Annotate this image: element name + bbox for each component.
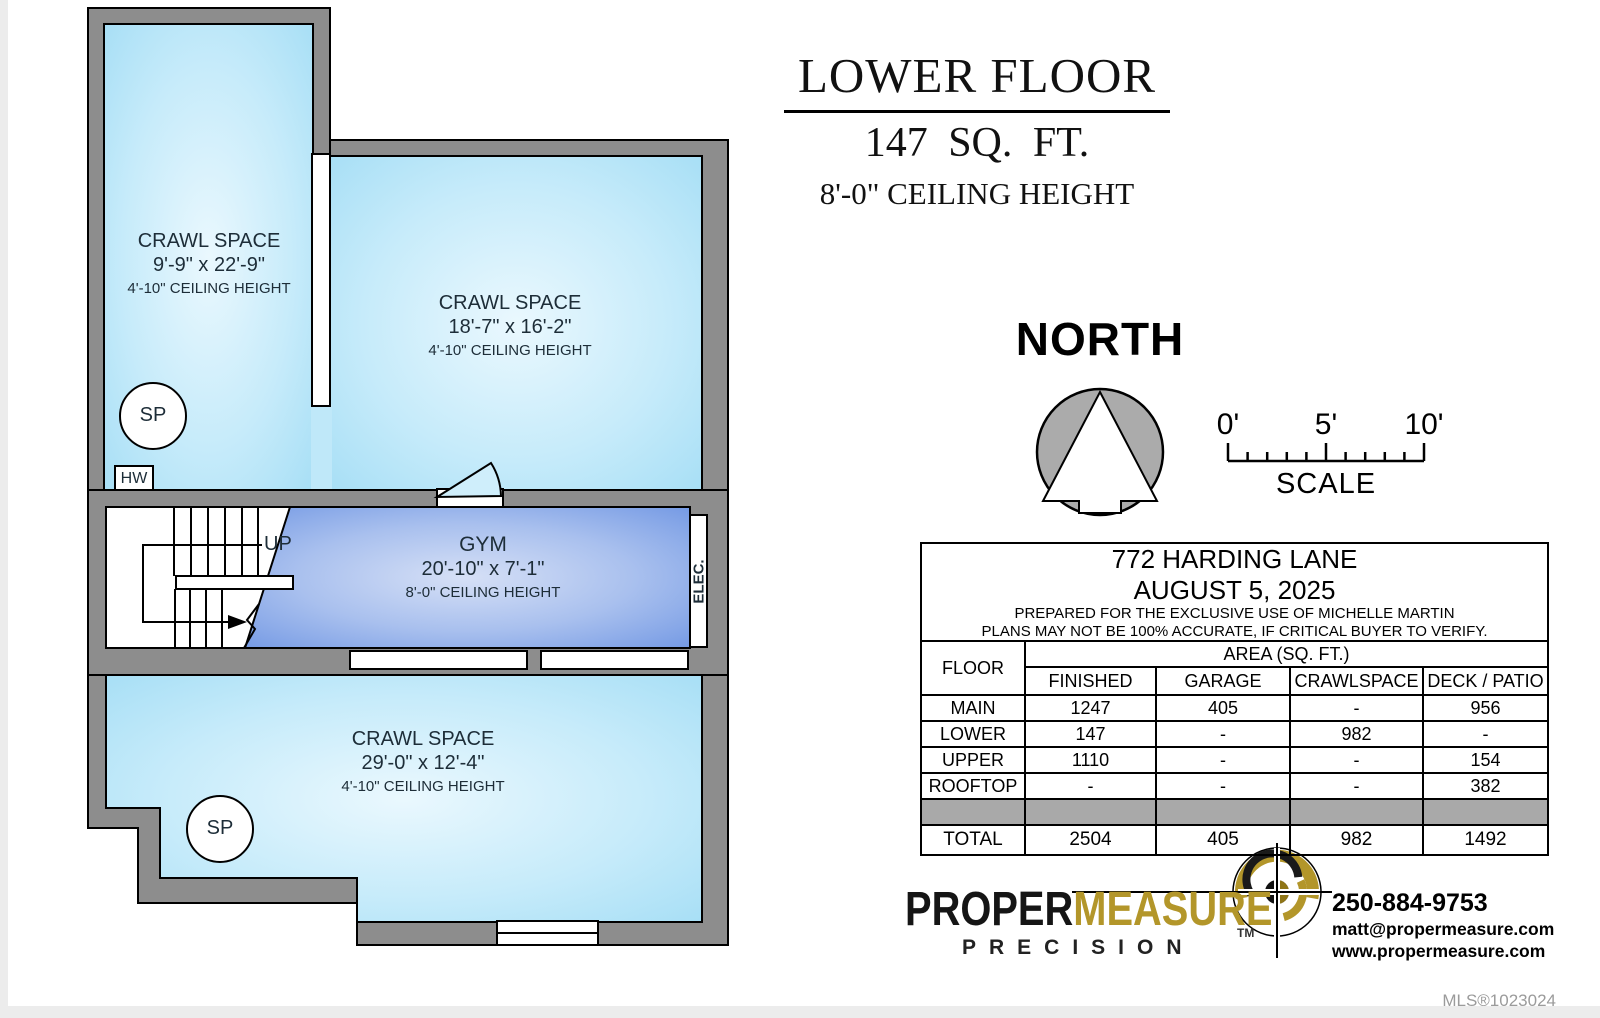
prepared-for-text: PREPARED FOR THE EXCLUSIVE USE OF MICHEL…	[922, 605, 1547, 623]
room-dims: 18'-7" x 16'-2"	[325, 315, 695, 339]
column-header-garage: GARAGE	[1156, 667, 1290, 695]
sump-label-1: SP	[121, 404, 185, 427]
room-ceiling: 4'-10" CEILING HEIGHT	[325, 341, 695, 361]
cell-crawlspace: -	[1290, 773, 1423, 799]
area-summary-table: 772 HARDING LANE AUGUST 5, 2025 PREPARED…	[920, 542, 1549, 856]
north-label: NORTH	[1000, 312, 1200, 366]
table-row-lower: LOWER 147 - 982 -	[921, 721, 1548, 747]
hot-water-label: HW	[115, 468, 153, 490]
room-dims: 20'-10" x 7'-1"	[330, 557, 636, 581]
table-row-total: TOTAL 2504 405 982 1492	[921, 825, 1548, 855]
cell-crawlspace: 982	[1290, 825, 1423, 855]
cell-floor: TOTAL	[921, 825, 1025, 855]
contact-email: matt@propermeasure.com	[1332, 918, 1554, 940]
page-title: LOWER FLOOR	[784, 50, 1170, 113]
cell-floor: MAIN	[921, 695, 1025, 721]
cell-floor: ROOFTOP	[921, 773, 1025, 799]
cell-deck: 956	[1423, 695, 1548, 721]
ceiling-height-text: 8'-0" CEILING HEIGHT	[762, 176, 1192, 212]
sump-label-2: SP	[188, 817, 252, 840]
cell-crawlspace: -	[1290, 747, 1423, 773]
property-address: 772 HARDING LANE	[922, 544, 1547, 575]
room-name: CRAWL SPACE	[250, 727, 596, 751]
cell-crawlspace: -	[1290, 695, 1423, 721]
cell-finished: 2504	[1025, 825, 1156, 855]
room-label-crawl-lower: CRAWL SPACE 29'-0" x 12'-4" 4'-10" CEILI…	[250, 727, 596, 797]
scale-label: SCALE	[1246, 468, 1406, 501]
cell-garage: 405	[1156, 825, 1290, 855]
table-row: FLOOR AREA (SQ. FT.)	[921, 641, 1548, 667]
wall-opening-right	[541, 651, 688, 669]
scale-ruler	[1228, 443, 1424, 461]
cell-finished: 1247	[1025, 695, 1156, 721]
room-name: GYM	[330, 533, 636, 557]
contact-phone: 250-884-9753	[1332, 888, 1554, 918]
room-name: CRAWL SPACE	[325, 291, 695, 315]
plan-date: AUGUST 5, 2025	[922, 575, 1547, 605]
stair-landing-rail	[176, 576, 293, 589]
electrical-label: ELEC.	[691, 522, 708, 642]
table-row-main: MAIN 1247 405 - 956	[921, 695, 1548, 721]
stairs-up-label: UP	[264, 533, 292, 556]
room-label-crawl-upper-right: CRAWL SPACE 18'-7" x 16'-2" 4'-10" CEILI…	[325, 291, 695, 361]
cell-deck: 382	[1423, 773, 1548, 799]
room-connector-opening	[311, 404, 332, 489]
room-dims: 29'-0" x 12'-4"	[250, 751, 596, 775]
cell-crawlspace: 982	[1290, 721, 1423, 747]
column-header-finished: FINISHED	[1025, 667, 1156, 695]
scale-tick-5: 5'	[1296, 408, 1356, 442]
cell-deck: -	[1423, 721, 1548, 747]
title-block: LOWER FLOOR 147 SQ. FT. 8'-0" CEILING HE…	[762, 50, 1192, 212]
column-header-deck: DECK / PATIO	[1423, 667, 1548, 695]
brand-tagline: PRECISION	[962, 936, 1195, 960]
area-header: AREA (SQ. FT.)	[1025, 641, 1548, 667]
cell-finished: 147	[1025, 721, 1156, 747]
cell-deck: 154	[1423, 747, 1548, 773]
contact-block: 250-884-9753 matt@propermeasure.com www.…	[1332, 888, 1554, 962]
room-dims: 9'-9" x 22'-9"	[100, 253, 318, 277]
cell-floor: LOWER	[921, 721, 1025, 747]
disclaimer-text: PLANS MAY NOT BE 100% ACCURATE, IF CRITI…	[922, 623, 1547, 640]
trademark-symbol: TM	[1237, 926, 1254, 940]
table-row-rooftop: ROOFTOP - - - 382	[921, 773, 1548, 799]
room-label-crawl-upper-left: CRAWL SPACE 9'-9" x 22'-9" 4'-10" CEILIN…	[100, 229, 318, 299]
cell-floor: UPPER	[921, 747, 1025, 773]
table-header-block: 772 HARDING LANE AUGUST 5, 2025 PREPARED…	[921, 543, 1548, 641]
room-ceiling: 8'-0" CEILING HEIGHT	[330, 583, 636, 603]
cell-finished: -	[1025, 773, 1156, 799]
cell-garage: -	[1156, 747, 1290, 773]
brand-name-part1: PROPER	[905, 883, 1073, 936]
brand-logo: PROPERMEASURE	[905, 886, 1272, 934]
room-name: CRAWL SPACE	[100, 229, 318, 253]
floor-area-text: 147 SQ. FT.	[762, 119, 1192, 167]
cell-garage: 405	[1156, 695, 1290, 721]
cell-garage: -	[1156, 721, 1290, 747]
table-row-upper: UPPER 1110 - - 154	[921, 747, 1548, 773]
cell-garage: -	[1156, 773, 1290, 799]
contact-website: www.propermeasure.com	[1332, 940, 1554, 962]
wall-opening-left	[350, 651, 527, 669]
scale-tick-0: 0'	[1198, 408, 1258, 442]
scale-tick-10: 10'	[1394, 408, 1454, 442]
floor-plan-page: CRAWL SPACE 9'-9" x 22'-9" 4'-10" CEILIN…	[0, 0, 1600, 1018]
table-spacer-row	[921, 799, 1548, 825]
room-label-gym: GYM 20'-10" x 7'-1" 8'-0" CEILING HEIGHT	[330, 533, 636, 603]
column-header-crawlspace: CRAWLSPACE	[1290, 667, 1423, 695]
room-ceiling: 4'-10" CEILING HEIGHT	[250, 777, 596, 797]
mls-number: MLS®1023024	[1442, 991, 1556, 1011]
cell-finished: 1110	[1025, 747, 1156, 773]
floor-column-header: FLOOR	[921, 641, 1025, 695]
cell-deck: 1492	[1423, 825, 1548, 855]
room-ceiling: 4'-10" CEILING HEIGHT	[100, 279, 318, 299]
